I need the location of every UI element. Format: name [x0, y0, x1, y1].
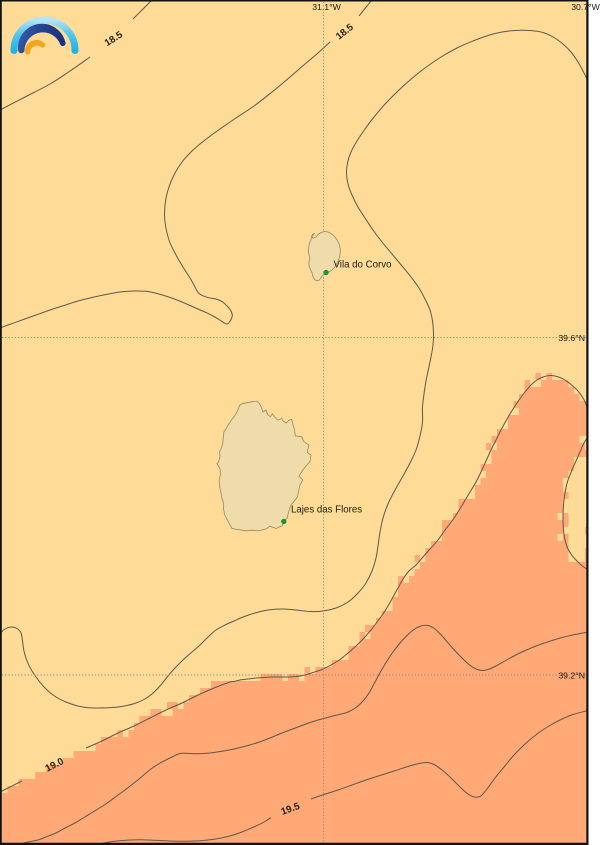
svg-text:39.6°N: 39.6°N [558, 333, 585, 343]
svg-text:30.7°W: 30.7°W [571, 2, 600, 12]
svg-text:31.1°W: 31.1°W [312, 2, 341, 12]
svg-text:Lajes das Flores: Lajes das Flores [291, 505, 362, 516]
svg-text:39.2°N: 39.2°N [558, 671, 585, 681]
svg-text:Vila do Corvo: Vila do Corvo [334, 260, 392, 271]
